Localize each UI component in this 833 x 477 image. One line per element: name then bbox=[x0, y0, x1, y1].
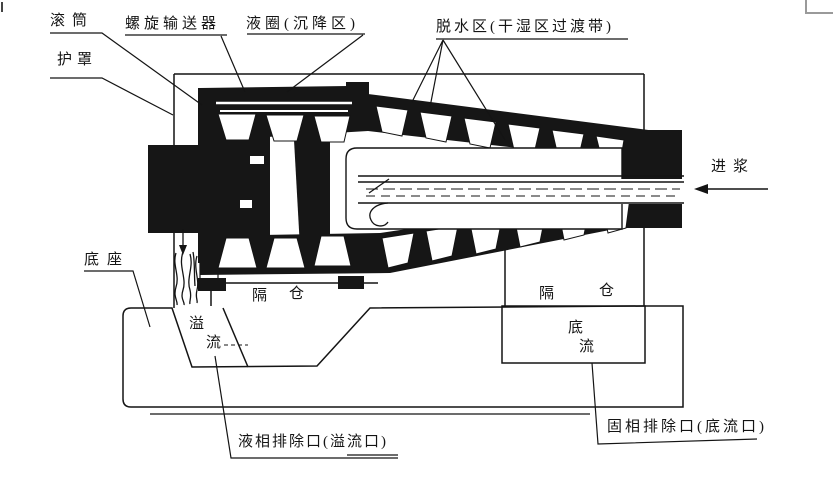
label-liquid-ring: 液圈(沉降区) bbox=[246, 16, 359, 33]
down-arrow bbox=[179, 245, 187, 255]
feed-arrowhead bbox=[694, 184, 708, 194]
diagram-page: 滚筒 螺旋输送器 液圈(沉降区) 脱水区(干湿区过渡带) 护罩 进浆 底座 隔 … bbox=[0, 0, 833, 477]
label-overflow-char2: 流 bbox=[206, 336, 221, 351]
label-base: 底座 bbox=[84, 252, 130, 269]
feed-tube-gap bbox=[612, 179, 688, 204]
label-underflow-char1: 底 bbox=[568, 321, 583, 336]
label-compartment-left-char2: 仓 bbox=[289, 287, 304, 302]
label-screw-conveyor: 螺旋输送器 bbox=[125, 16, 220, 33]
label-compartment-right-char1: 隔 bbox=[539, 287, 554, 302]
drive-box bbox=[148, 145, 200, 233]
feed-arrow bbox=[694, 184, 768, 194]
overflow-streams bbox=[175, 229, 198, 305]
leader-cover bbox=[50, 78, 173, 115]
diagram-canvas bbox=[0, 0, 833, 477]
funnel-divider bbox=[223, 308, 248, 367]
leader-screw-conveyor bbox=[125, 35, 245, 92]
label-solid-outlet: 固相排除口(底流口) bbox=[607, 419, 767, 436]
label-feed: 进浆 bbox=[711, 159, 755, 176]
label-cover: 护罩 bbox=[57, 52, 97, 69]
label-overflow-char1: 溢 bbox=[189, 317, 204, 332]
support-foot-right bbox=[338, 276, 364, 289]
page-corner-mark bbox=[805, 0, 833, 13]
base-outline bbox=[123, 306, 683, 414]
leader-base bbox=[84, 271, 150, 327]
label-liquid-outlet: 液相排除口(溢流口) bbox=[238, 434, 388, 451]
leader-drum bbox=[50, 33, 202, 105]
label-compartment-left-char1: 隔 bbox=[252, 289, 267, 304]
bowl-collar bbox=[346, 82, 369, 96]
label-dewatering-zone: 脱水区(干湿区过渡带) bbox=[436, 19, 614, 36]
label-underflow-char2: 流 bbox=[579, 340, 594, 355]
support-foot-left bbox=[198, 278, 226, 291]
label-compartment-right-char2: 仓 bbox=[599, 284, 614, 299]
label-drum: 滚筒 bbox=[50, 13, 94, 30]
